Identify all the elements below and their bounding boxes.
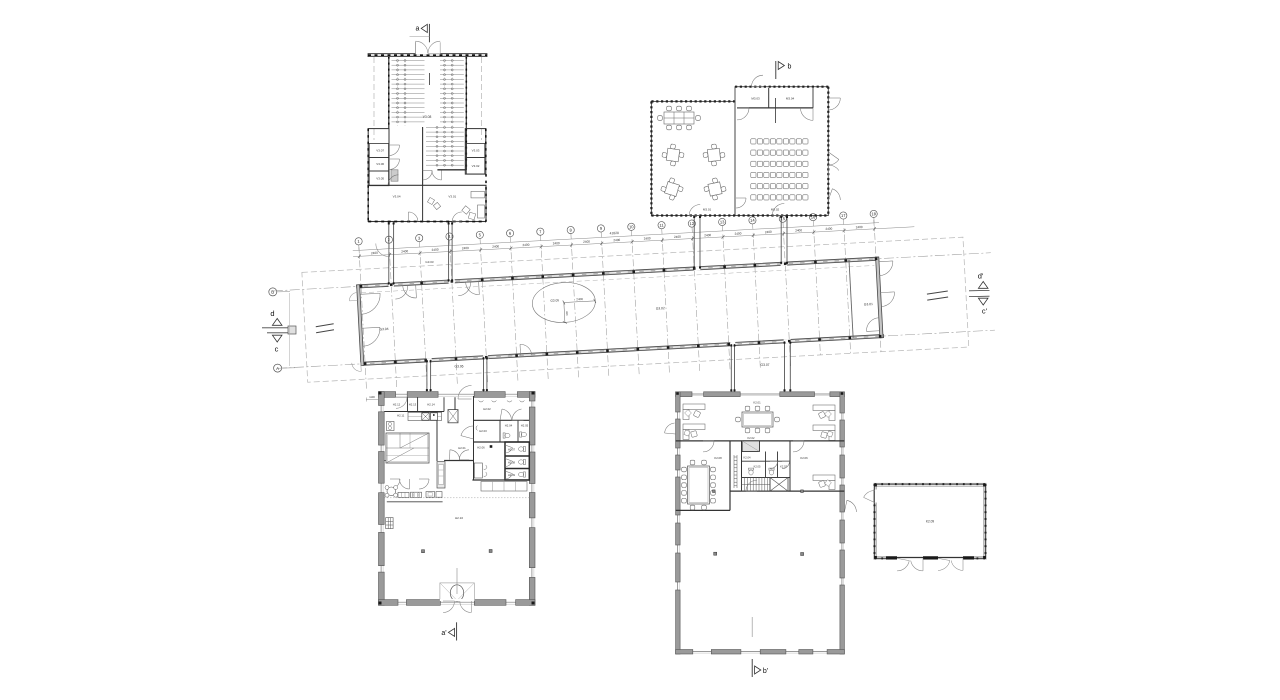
svg-text:G3.02: G3.02 (656, 306, 665, 310)
svg-text:K2.01: K2.01 (753, 401, 761, 405)
svg-text:M3.04: M3.04 (786, 97, 795, 101)
svg-text:G3.06: G3.06 (455, 365, 464, 369)
svg-text:V3.03: V3.03 (472, 149, 480, 153)
svg-text:41820: 41820 (609, 231, 619, 236)
svg-text:2400: 2400 (371, 251, 378, 255)
svg-text:2400: 2400 (522, 243, 529, 247)
svg-text:H2.02: H2.02 (483, 407, 491, 411)
svg-text:G3.04: G3.04 (379, 327, 388, 331)
svg-text:K2.04: K2.04 (743, 456, 751, 460)
svg-text:K2.06: K2.06 (800, 456, 808, 460)
svg-text:2400: 2400 (576, 297, 583, 301)
svg-text:V3.05: V3.05 (376, 177, 384, 181)
svg-text:2400: 2400 (795, 228, 802, 232)
svg-text:2400: 2400 (462, 246, 469, 250)
svg-text:900: 900 (565, 311, 569, 316)
svg-text:H2.06: H2.06 (477, 446, 485, 450)
svg-text:V3.07: V3.07 (376, 149, 384, 153)
svg-text:2400: 2400 (613, 238, 620, 242)
svg-text:K2.05: K2.05 (754, 465, 761, 469)
svg-text:a: a (416, 26, 420, 33)
svg-text:a': a' (441, 630, 446, 637)
svg-text:2400: 2400 (644, 236, 651, 240)
svg-text:M3.01: M3.01 (703, 208, 712, 212)
svg-text:G3.07: G3.07 (761, 363, 770, 367)
svg-text:2400: 2400 (856, 225, 863, 229)
svg-text:M3.03: M3.03 (751, 97, 760, 101)
svg-text:1100: 1100 (369, 395, 375, 399)
svg-text:K2.08: K2.08 (714, 456, 722, 460)
svg-text:H2.10: H2.10 (455, 516, 463, 520)
svg-text:H2.04: H2.04 (505, 424, 513, 428)
svg-text:H2.01: H2.01 (458, 446, 466, 450)
svg-text:H2.12: H2.12 (393, 403, 401, 407)
svg-text:d': d' (978, 272, 984, 281)
svg-text:K2.09: K2.09 (926, 520, 935, 524)
svg-text:G3.01: G3.01 (864, 302, 873, 306)
svg-text:2400: 2400 (492, 244, 499, 248)
svg-text:H2.14: H2.14 (427, 403, 435, 407)
svg-text:K2.02: K2.02 (747, 436, 755, 440)
svg-text:V3.08: V3.08 (423, 115, 432, 119)
svg-text:V3.06: V3.06 (376, 162, 384, 166)
svg-text:V3.02: V3.02 (472, 164, 480, 168)
svg-text:2400: 2400 (825, 227, 832, 231)
svg-text:B: B (271, 290, 274, 295)
svg-text:H2.11: H2.11 (397, 413, 405, 417)
svg-text:V3.01: V3.01 (448, 195, 456, 199)
svg-text:K2.07: K2.07 (780, 465, 787, 469)
svg-text:2400: 2400 (704, 233, 711, 237)
svg-text:2400: 2400 (432, 248, 439, 252)
svg-text:b': b' (763, 668, 768, 675)
svg-text:2400: 2400 (401, 249, 408, 253)
svg-text:2400: 2400 (765, 230, 772, 234)
svg-text:c': c' (982, 307, 988, 316)
svg-text:2400: 2400 (553, 241, 560, 245)
svg-text:2400: 2400 (583, 240, 590, 244)
svg-text:G3.03: G3.03 (425, 260, 434, 264)
svg-text:2400: 2400 (674, 235, 681, 239)
svg-text:H2.05: H2.05 (521, 424, 529, 428)
svg-text:b: b (788, 64, 792, 71)
svg-text:H2.03: H2.03 (479, 429, 487, 433)
svg-text:d: d (270, 309, 274, 318)
svg-text:c: c (275, 345, 279, 354)
svg-text:2400: 2400 (734, 231, 741, 235)
svg-text:G3.05: G3.05 (550, 298, 559, 302)
svg-text:H2.13: H2.13 (409, 403, 417, 407)
svg-text:V3.04: V3.04 (393, 195, 401, 199)
